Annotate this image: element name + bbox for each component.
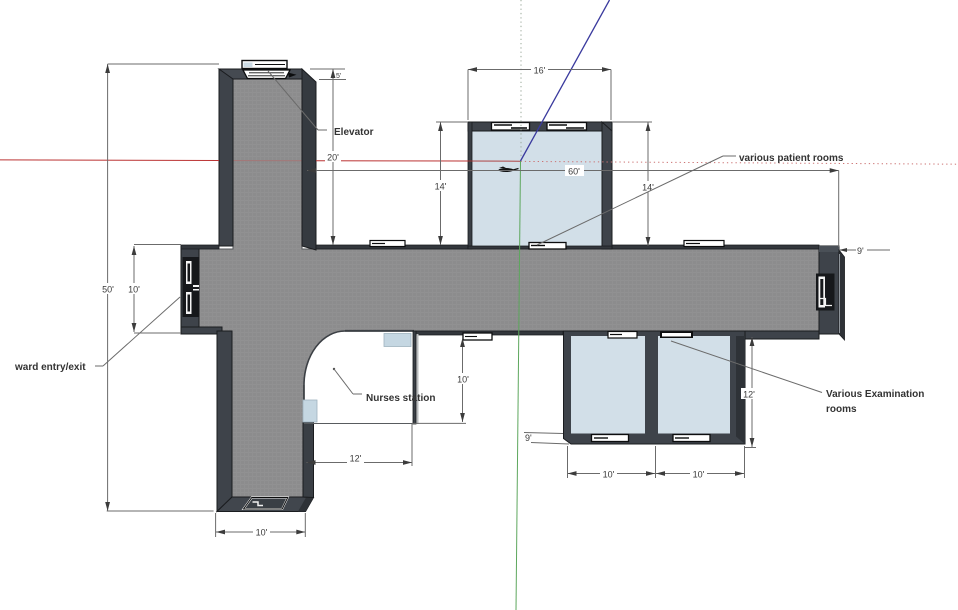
svg-text:60': 60': [568, 167, 580, 177]
svg-text:10': 10': [457, 375, 469, 385]
svg-text:Various Examination: Various Examination: [826, 389, 924, 400]
svg-text:9': 9': [857, 246, 864, 256]
svg-text:14': 14': [435, 182, 447, 192]
svg-text:10': 10': [128, 285, 140, 295]
svg-text:various patient rooms: various patient rooms: [739, 153, 844, 164]
svg-text:10': 10': [256, 528, 268, 538]
svg-text:Nurses station: Nurses station: [366, 393, 435, 404]
svg-text:20': 20': [327, 153, 339, 163]
svg-text:12': 12': [350, 454, 362, 464]
svg-text:14': 14': [642, 183, 654, 193]
svg-text:5': 5': [336, 73, 341, 80]
svg-text:10': 10': [693, 470, 705, 480]
svg-text:ward entry/exit: ward entry/exit: [14, 362, 86, 373]
svg-text:Elevator: Elevator: [334, 127, 374, 138]
svg-text:9': 9': [525, 433, 532, 443]
svg-text:50': 50': [102, 285, 114, 295]
svg-text:10': 10': [603, 470, 615, 480]
svg-text:16': 16': [534, 66, 546, 76]
svg-text:rooms: rooms: [826, 404, 857, 415]
svg-text:12': 12': [743, 390, 755, 400]
